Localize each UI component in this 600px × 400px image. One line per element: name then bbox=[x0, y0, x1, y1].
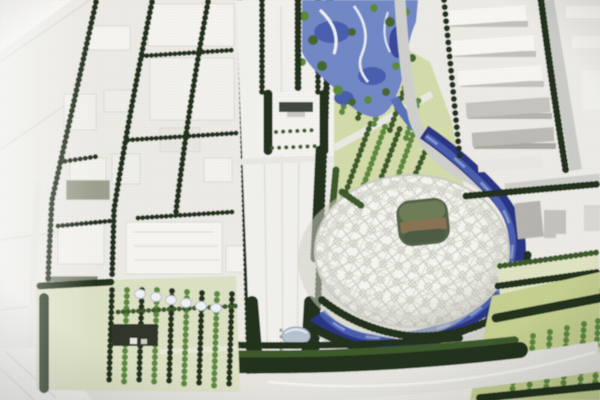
model-photo bbox=[0, 0, 600, 400]
vignette-overlay bbox=[0, 0, 600, 400]
model-photo-canvas bbox=[0, 0, 600, 400]
